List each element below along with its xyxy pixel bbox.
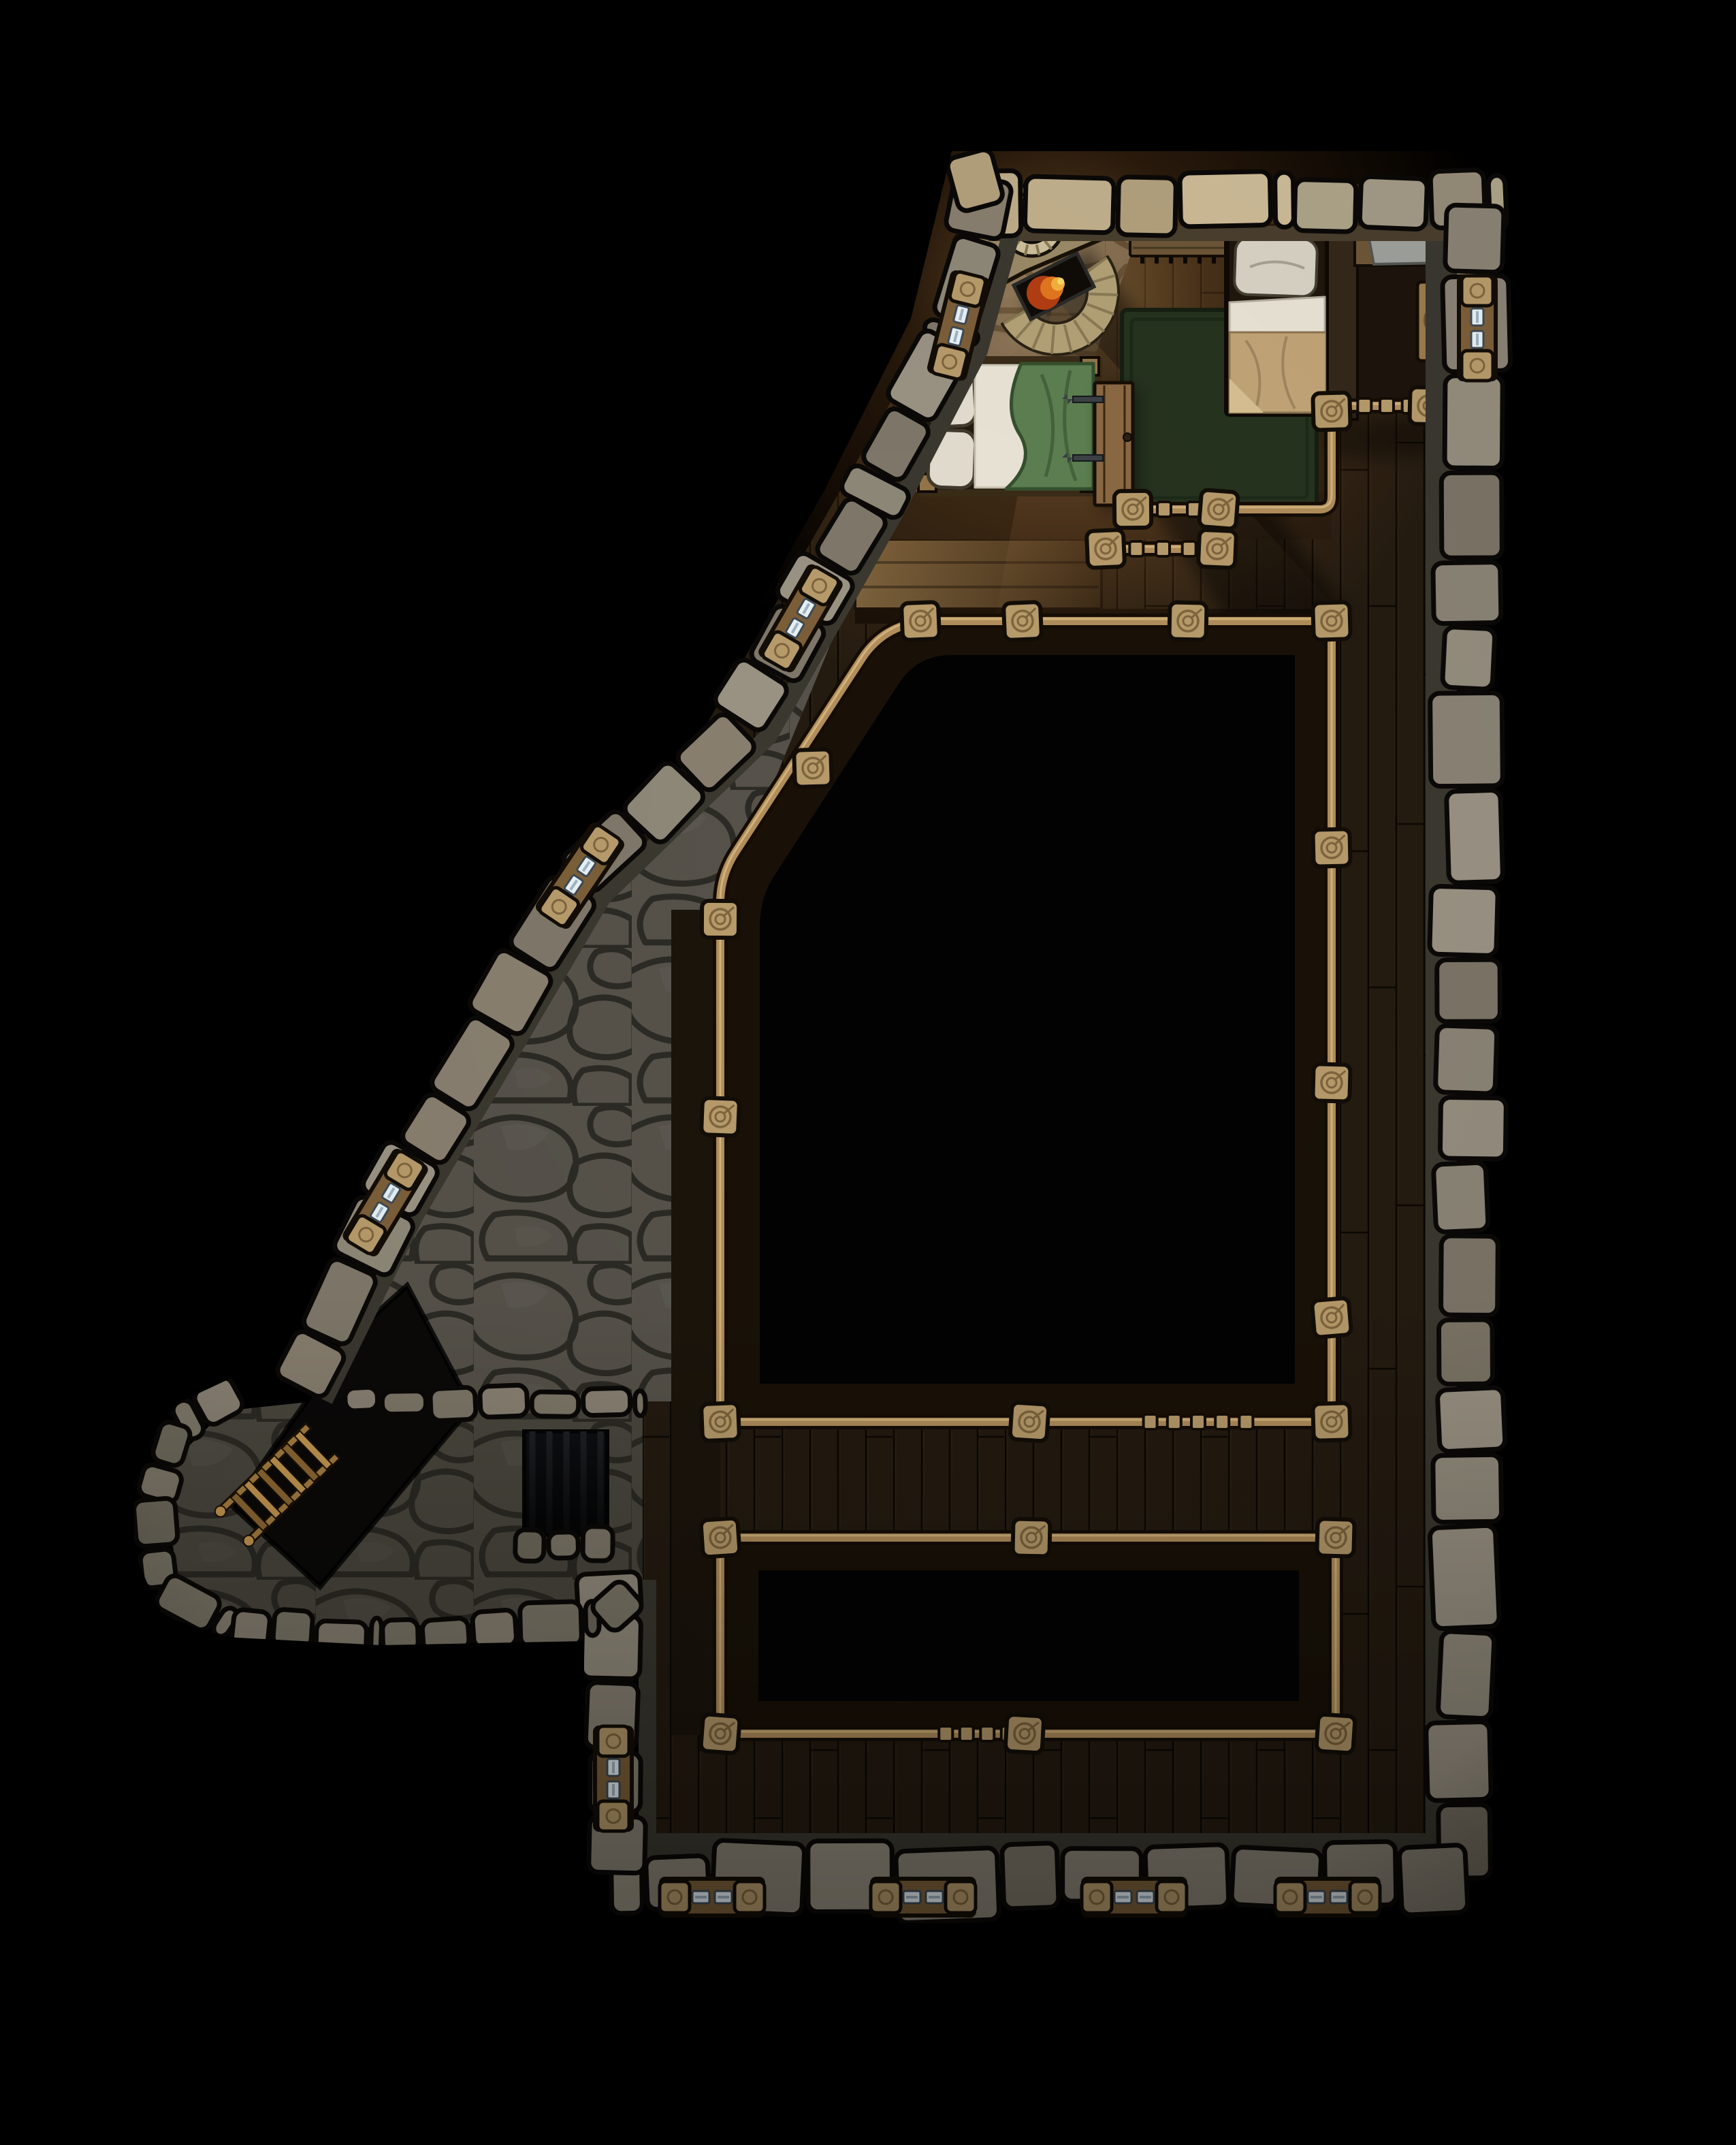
battle-map bbox=[0, 0, 1736, 2145]
map-render-root bbox=[0, 0, 1736, 2145]
map-stage bbox=[0, 0, 1736, 2145]
